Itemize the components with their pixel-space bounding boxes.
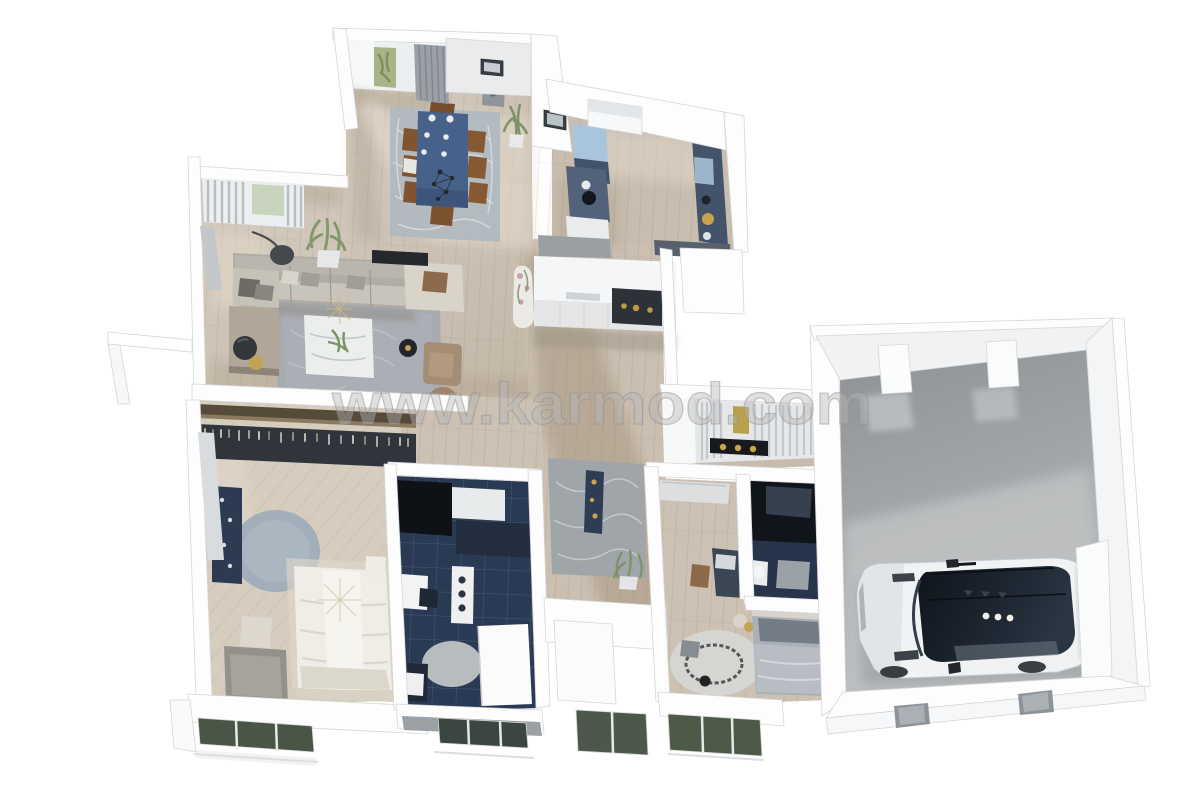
svg-text:www.karmod.com: www.karmod.com — [331, 372, 872, 437]
